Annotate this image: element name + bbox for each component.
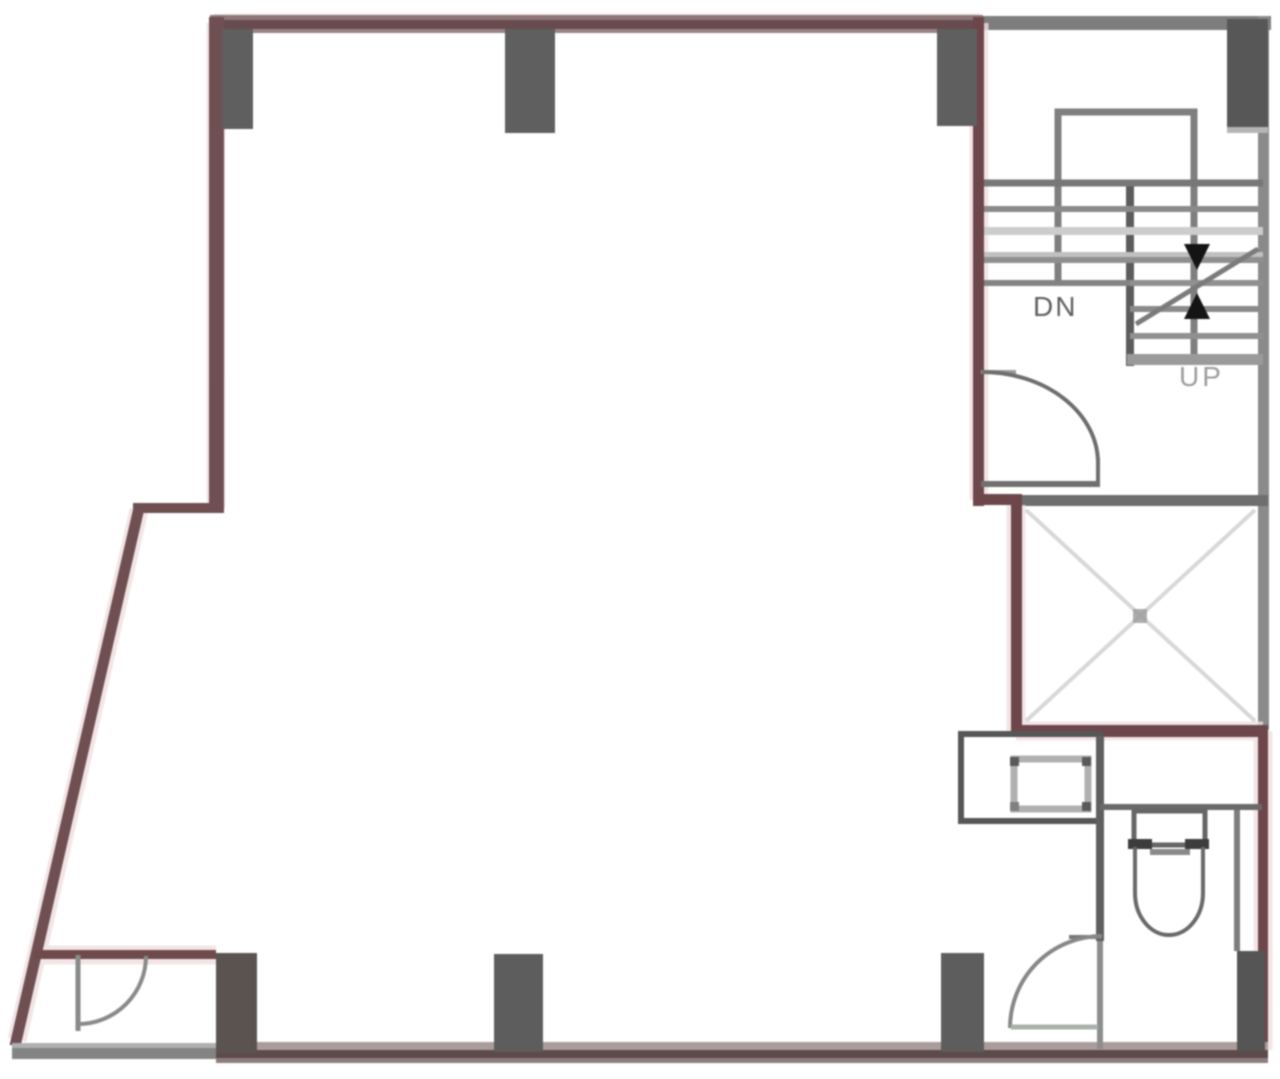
svg-text:DN: DN <box>1033 291 1077 322</box>
svg-text:UP: UP <box>1179 361 1224 392</box>
